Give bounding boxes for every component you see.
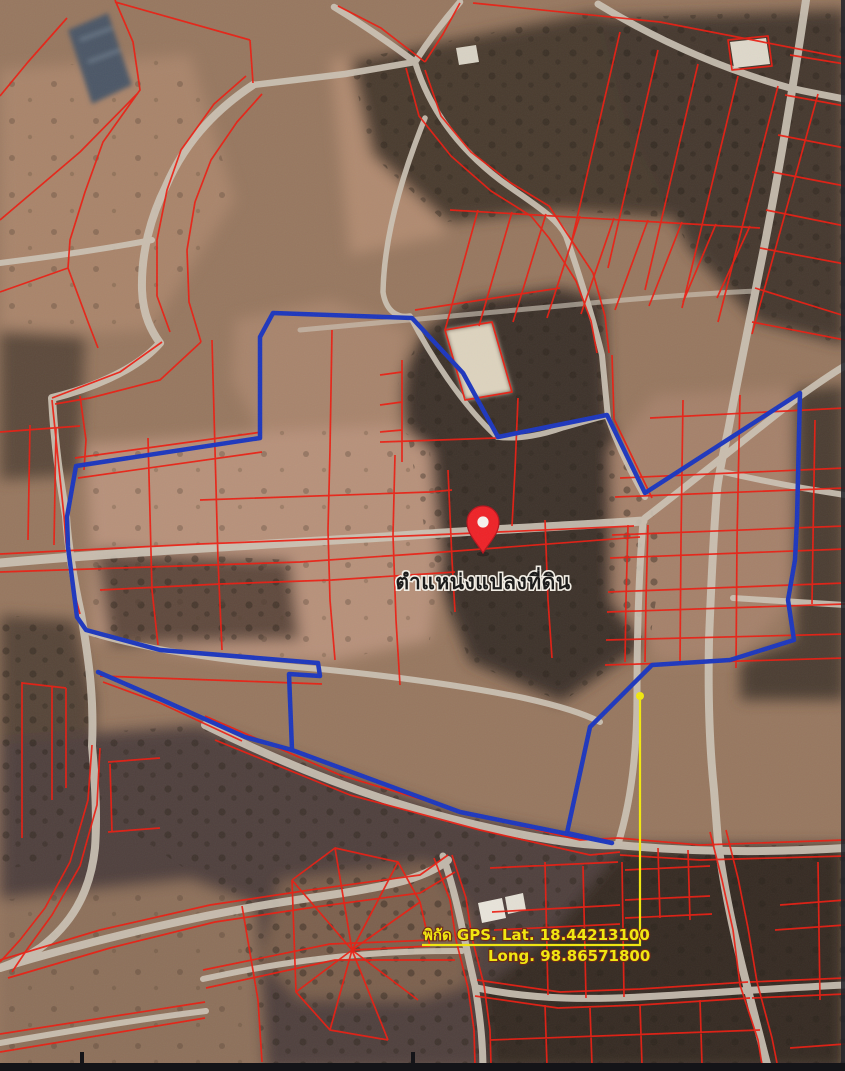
scanned-map-page: พิกัด GPS. Lat. 18.44213100 Long. 98.865… <box>0 0 845 1071</box>
scan-edge-line <box>841 0 845 1071</box>
scan-grain-overlay <box>0 0 845 1071</box>
satellite-map: พิกัด GPS. Lat. 18.44213100 Long. 98.865… <box>0 0 845 1071</box>
